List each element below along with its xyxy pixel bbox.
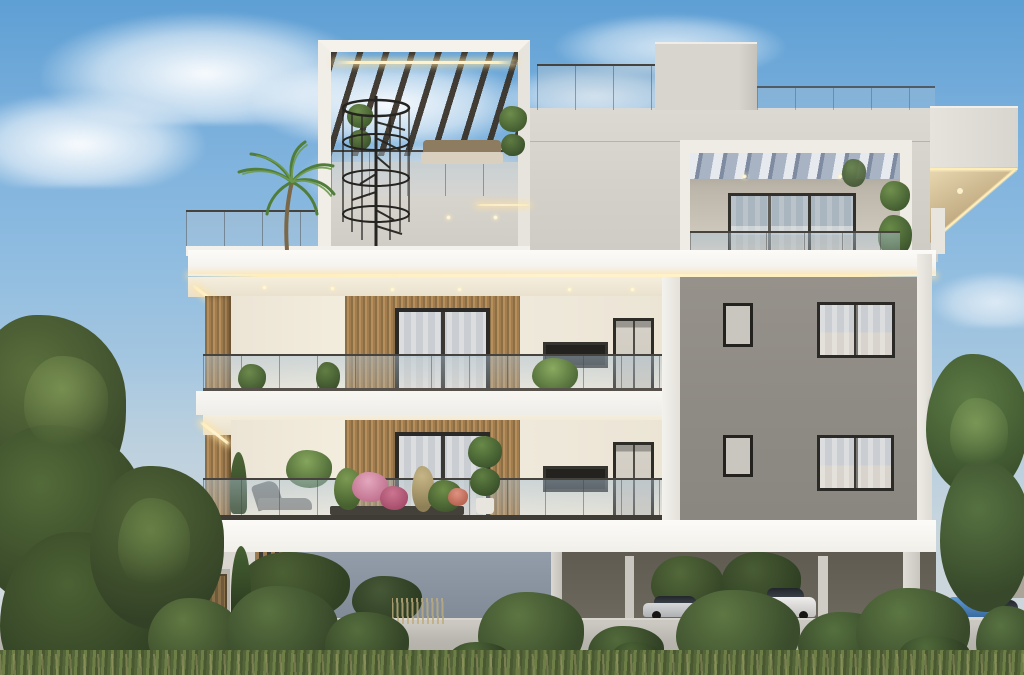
led-strip-pergola [333,61,516,64]
soffit-downlight [330,286,335,291]
white-pilaster [917,254,932,520]
cloud [0,92,205,187]
wicker-sofa-seat [421,152,503,164]
cloud [930,272,1024,327]
roof-glass-railing [757,86,935,110]
topiary-ball [880,181,910,211]
soffit-downlight [390,287,395,292]
rafter-downlight [742,174,747,179]
ball-topiary [470,468,500,496]
left-tree-highlight [24,356,108,450]
soffit-downlight [262,285,267,290]
ball-topiary [468,436,502,468]
roof-overhang-fascia [930,106,1018,170]
gray-wing-small-window [723,303,753,347]
main-roof-slab [188,250,936,276]
pilotis-column [818,556,828,622]
soffit-downlight [567,287,572,292]
penthouse-rafters [690,153,900,179]
gray-wing-window [817,302,895,358]
roof-glass-railing [537,64,655,110]
right-tree-highlight [950,398,1008,470]
balcony-slab [196,391,662,415]
hanging-vine [842,159,866,187]
reed-tuft [392,598,444,624]
pilotis-column [625,556,634,622]
soffit-downlight [630,287,635,292]
white-pilaster [662,277,680,520]
spiral-topiary [499,106,527,132]
flower-magenta [380,486,408,510]
balcony-fern [532,358,578,392]
architectural-render-scene [0,0,1024,675]
roof-access-box [655,42,757,110]
terrace-downlight [493,215,498,220]
spiral-topiary [501,134,525,156]
topiary-pot [476,498,494,514]
spiral-staircase [330,92,426,252]
palm-tree [231,140,339,252]
gray-wing-window [817,435,894,491]
terrace-downlight [446,215,451,220]
balcony-soffit [188,277,662,297]
corner-wall [931,208,945,254]
flower-coral [448,488,468,506]
left-mid-tree-highlight [118,498,190,590]
soffit-downlight [457,287,462,292]
right-tree-canopy [940,460,1024,612]
ground-floor-slab [185,520,936,552]
gray-wing-small-window [723,435,753,477]
penthouse-balcony [680,140,912,252]
penthouse-interior [690,153,900,252]
grass-dry-tufts [0,654,1024,675]
led-strip-terrace [476,204,530,206]
